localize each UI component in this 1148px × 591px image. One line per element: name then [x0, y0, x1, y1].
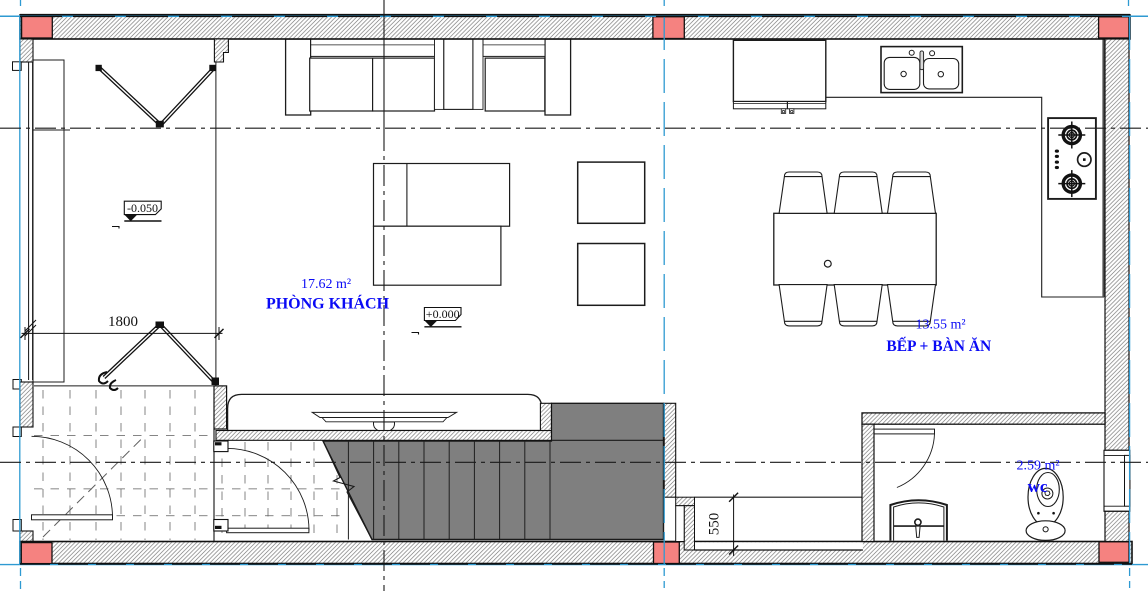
svg-text:550: 550 — [707, 513, 723, 536]
svg-text:+0.000: +0.000 — [426, 307, 460, 321]
svg-text:-0.050: -0.050 — [127, 201, 158, 215]
svg-text:17.62 m²: 17.62 m² — [301, 277, 351, 292]
svg-text:13.55 m²: 13.55 m² — [915, 318, 965, 333]
svg-text:PHÒNG KHÁCH: PHÒNG KHÁCH — [266, 294, 390, 313]
svg-text:wc: wc — [1028, 477, 1048, 496]
svg-text:2.59 m²: 2.59 m² — [1016, 459, 1059, 474]
svg-text:BẾP + BÀN ĂN: BẾP + BÀN ĂN — [886, 337, 991, 355]
svg-text:1800: 1800 — [108, 314, 138, 330]
